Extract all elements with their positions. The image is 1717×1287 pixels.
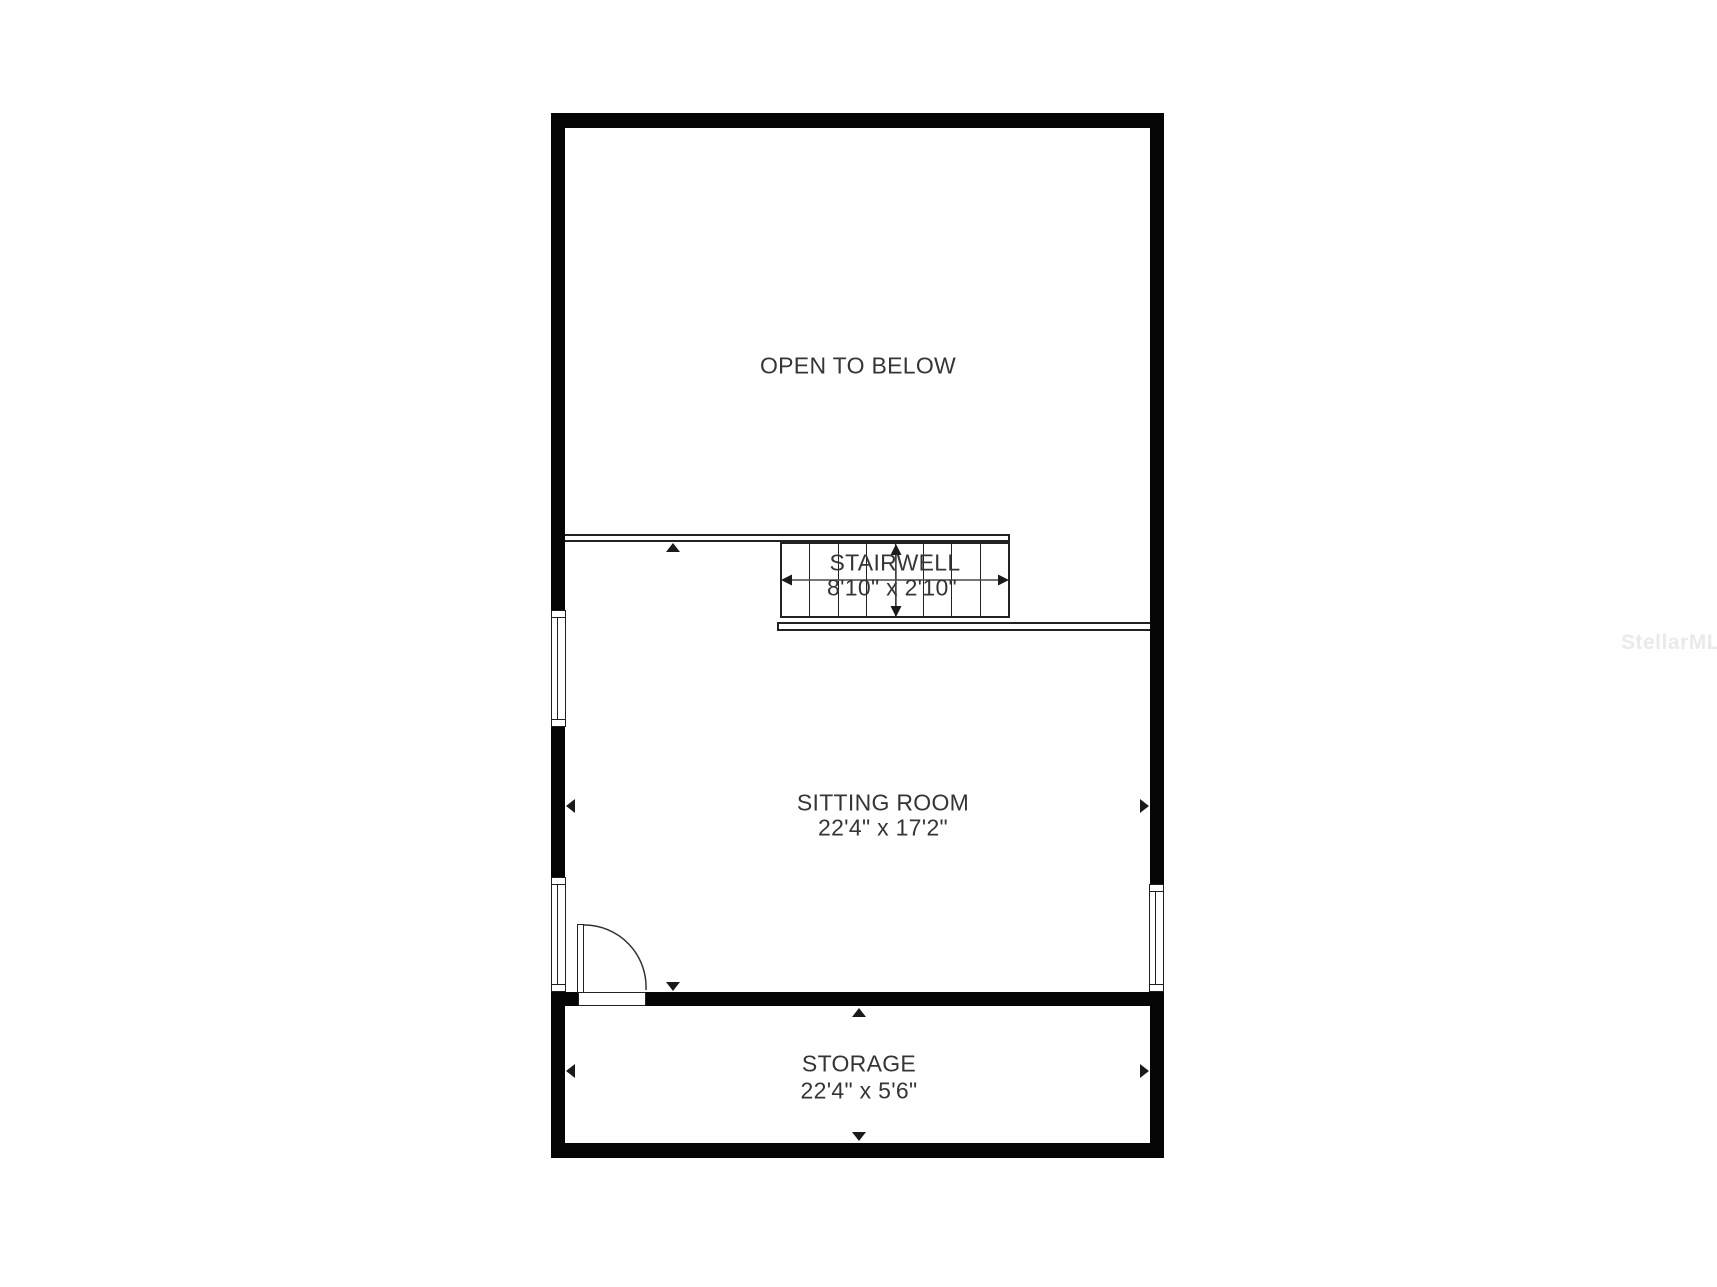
door-swing-arc-icon [584, 925, 646, 990]
wall-divider-left [551, 992, 578, 1006]
tick-arrow-down-icon [666, 982, 680, 991]
room-label-stairwell: STAIRWELL [830, 552, 961, 575]
wall-right-upper [1150, 113, 1164, 884]
tick-arrow-right-icon [1140, 1064, 1149, 1078]
room-label-sitting-room: SITTING ROOM [797, 792, 969, 815]
wall-left-lower [551, 992, 565, 1158]
tick-arrow-down-icon [852, 1132, 866, 1141]
wall-left-middle [551, 727, 565, 877]
window-glass-line [1155, 891, 1156, 985]
room-dimensions-stairwell: 8'10" x 2'10" [827, 577, 957, 600]
tick-arrow-right-icon [1140, 799, 1149, 813]
wall-top [551, 113, 1164, 128]
window-glass-line [557, 884, 558, 985]
wall-right-lower [1150, 992, 1164, 1158]
watermark-stellar-mls: StellarMLS [1621, 631, 1717, 654]
landing-edge-line [777, 622, 1150, 631]
door-opening [578, 992, 646, 1006]
window-glass-line [557, 617, 558, 720]
tick-arrow-left-icon [566, 799, 575, 813]
tick-arrow-up-icon [852, 1008, 866, 1017]
room-label-storage: STORAGE [802, 1053, 916, 1076]
tick-arrow-left-icon [566, 1064, 575, 1078]
window-icon-left-lower [551, 877, 566, 992]
window-sill [551, 878, 566, 885]
wall-bottom [551, 1143, 1164, 1158]
window-sill [1149, 885, 1164, 892]
door-leaf-icon [577, 924, 584, 993]
window-sill [551, 611, 566, 618]
floorplan-canvas: OPEN TO BELOW STAIRWELL 8'10" x 2'10" SI… [0, 0, 1717, 1287]
window-icon-left-upper [551, 610, 566, 727]
room-label-open-to-below: OPEN TO BELOW [760, 355, 956, 378]
room-dimensions-storage: 22'4" x 5'6" [801, 1080, 918, 1103]
stair-tread [782, 544, 810, 616]
stair-tread [981, 544, 1008, 616]
wall-divider-right [646, 992, 1164, 1006]
tick-arrow-up-icon [666, 543, 680, 552]
window-icon-right [1149, 884, 1164, 992]
wall-left-upper [551, 113, 565, 610]
window-sill [551, 719, 566, 726]
window-sill [1149, 984, 1164, 991]
room-dimensions-sitting-room: 22'4" x 17'2" [818, 817, 948, 840]
balcony-edge-line [565, 534, 1010, 542]
window-sill [551, 984, 566, 991]
